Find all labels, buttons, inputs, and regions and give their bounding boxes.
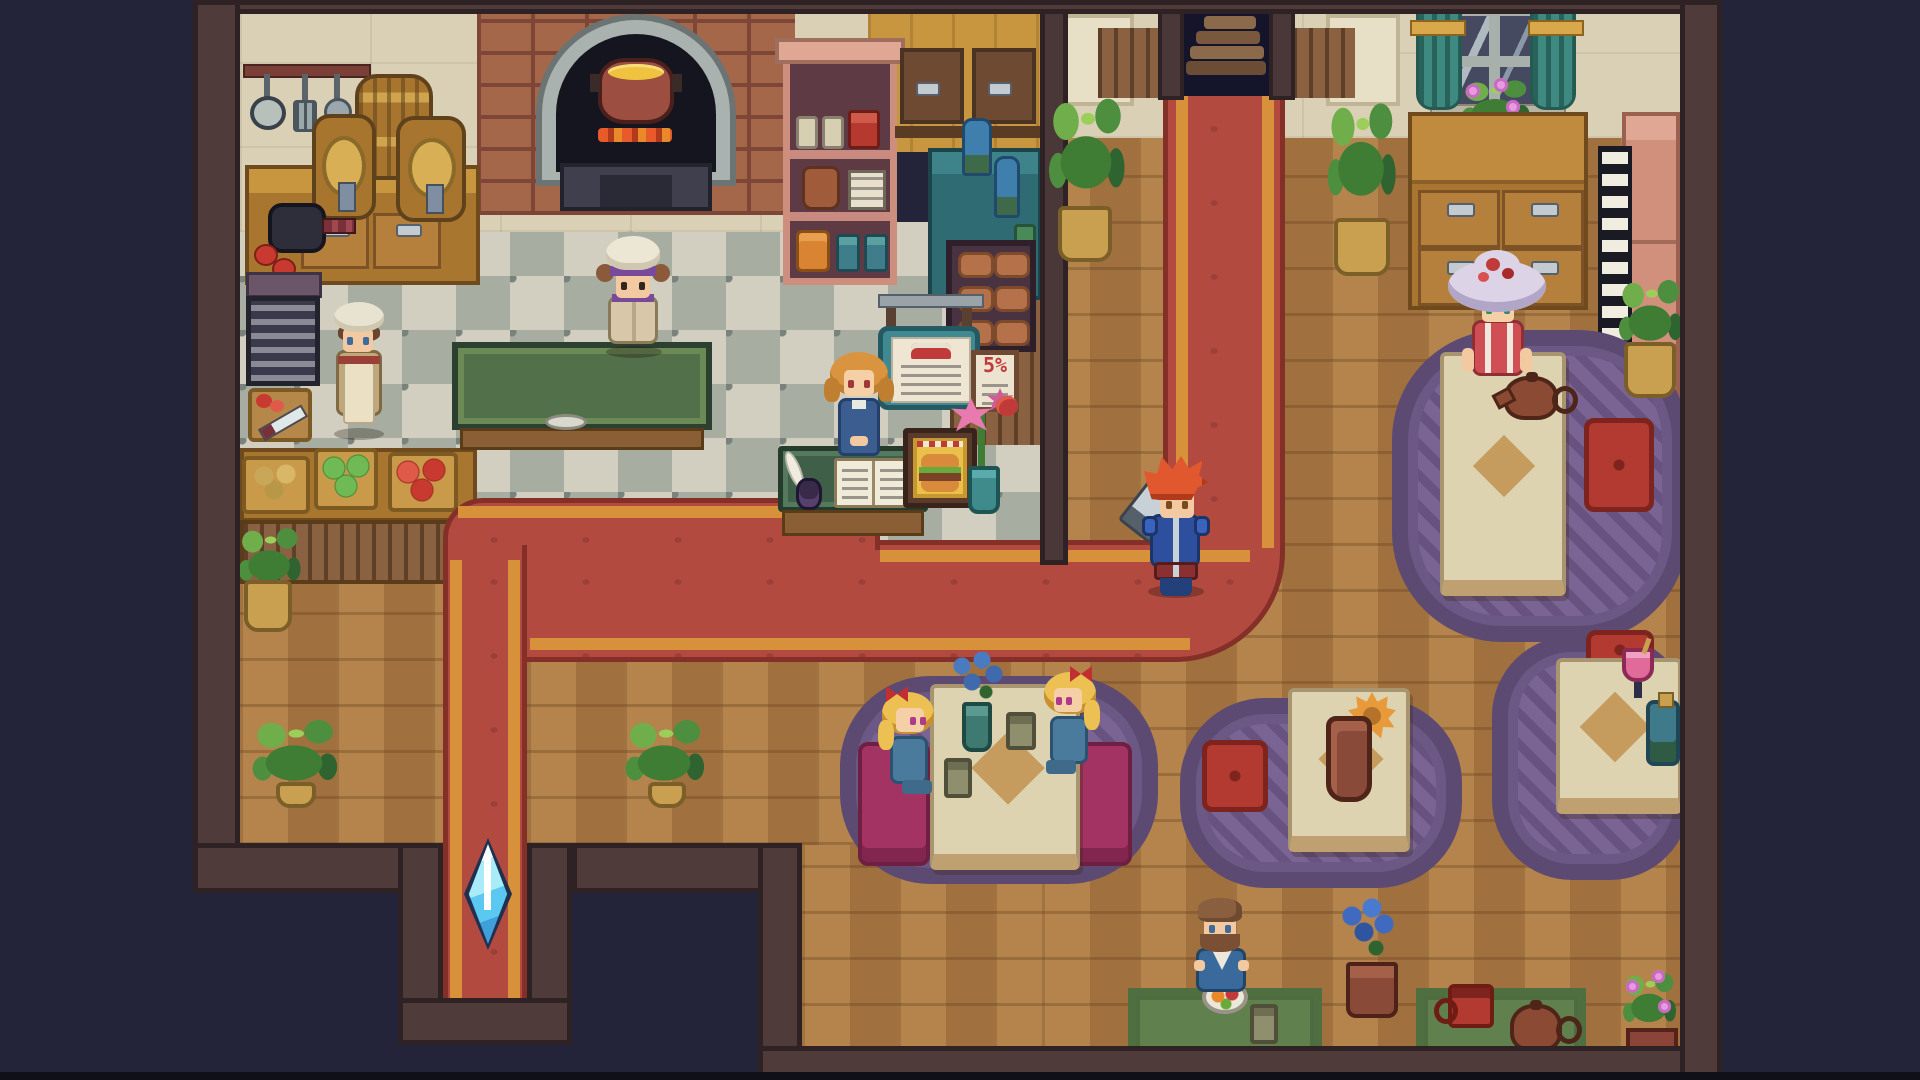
carpet-stripe <box>508 560 520 998</box>
wall-cabinet-door <box>972 48 1036 124</box>
drawer-handle-icon <box>1531 203 1559 217</box>
reception-desk-front <box>782 510 924 536</box>
mug-icon <box>944 758 972 798</box>
npc-head-chef[interactable] <box>594 236 674 358</box>
table-diamond-motif <box>1473 435 1535 497</box>
dresser-top <box>1412 116 1584 184</box>
dress <box>890 736 928 784</box>
pink-shelf-top <box>775 38 905 64</box>
menu-card <box>891 337 971 403</box>
dress <box>1050 716 1088 764</box>
book-gutter <box>872 461 875 505</box>
npc-hostess[interactable] <box>822 352 896 464</box>
plate-icon <box>545 414 587 430</box>
collar <box>852 400 866 409</box>
hair <box>1198 898 1242 922</box>
curtain-tie-icon <box>1528 20 1584 36</box>
teal-jar-icon <box>836 234 860 272</box>
hair-tail-icon <box>1084 700 1100 730</box>
cabinet-handle-icon <box>988 82 1012 96</box>
teapot-lid-icon <box>1530 1000 1542 1010</box>
cake-icon <box>911 343 951 359</box>
room-border-left <box>193 0 240 893</box>
flower-icon <box>1626 980 1639 993</box>
hand <box>1194 960 1205 971</box>
plant-pot <box>648 782 686 808</box>
burger-sign[interactable] <box>903 428 977 508</box>
blue-bottle-icon <box>962 118 992 176</box>
red-mug-icon <box>1448 984 1494 1028</box>
room-border-step-vertical <box>758 843 802 1052</box>
potato-basket <box>242 456 310 514</box>
room-border-top <box>193 0 1722 14</box>
flower-vase-brown <box>1326 716 1372 802</box>
plate-stack-icon <box>848 170 886 210</box>
bottle-cork-icon <box>1658 692 1674 708</box>
sign-crossbar-icon <box>878 294 984 308</box>
wine-glass-icon <box>1622 648 1654 682</box>
plant-pot <box>1058 206 1112 262</box>
doorway-plant-right <box>1316 82 1406 222</box>
bread-icon <box>994 286 1030 312</box>
prep-table-base <box>460 428 704 450</box>
barrel-tap-icon <box>426 184 444 214</box>
barrel-tapped <box>396 116 466 222</box>
carpet-stripe <box>1262 96 1274 548</box>
npc-sous-chef[interactable] <box>326 302 392 442</box>
mug-icon <box>1250 1004 1278 1044</box>
apron <box>343 362 375 424</box>
table-diamond-motif <box>1580 692 1651 763</box>
stairway-opening[interactable] <box>1184 0 1269 96</box>
barrel-tapped <box>312 114 376 220</box>
legs <box>1046 760 1076 774</box>
doorway-plant-left <box>1036 78 1136 214</box>
drawer-handle-icon <box>1447 203 1475 217</box>
glass-stem-icon <box>1634 682 1642 698</box>
seat-cushion[interactable] <box>1202 740 1268 812</box>
blue-flowers-icon <box>948 652 1006 706</box>
hair-lobe-icon <box>824 378 840 402</box>
face <box>896 708 924 732</box>
teal-bottle-icon <box>1646 700 1680 766</box>
hat-flower-icon <box>1478 272 1489 282</box>
tomato-basket <box>388 452 458 512</box>
chef-torso <box>608 296 658 344</box>
stair-step <box>1196 31 1260 44</box>
plant-pot <box>244 580 292 632</box>
pan-handle-icon <box>322 218 356 234</box>
save-crystal-shine <box>484 854 491 910</box>
jar-icon <box>796 116 818 149</box>
spatula-icon <box>302 74 308 102</box>
frying-pan-icon <box>268 203 326 253</box>
chef-hood-icon <box>334 302 384 332</box>
soup-pot[interactable] <box>598 58 674 124</box>
menu-scribble-text <box>901 365 961 395</box>
discount-poster-label: 5% <box>976 355 1014 375</box>
tomato-crate <box>246 272 322 298</box>
marquee-lights-icon <box>917 441 963 447</box>
oven-door <box>600 175 672 207</box>
npc-flower-hat-lady[interactable] <box>1448 256 1546 384</box>
stair-step <box>1204 16 1256 29</box>
arm <box>1462 348 1474 372</box>
npc-girl-right[interactable] <box>1036 670 1106 788</box>
flower-icon <box>1658 1000 1671 1013</box>
menu-book[interactable] <box>834 458 912 508</box>
cutting-board <box>248 388 312 442</box>
cabinet-handle-icon <box>916 82 940 96</box>
red-canister-icon <box>848 110 880 149</box>
oven-fire <box>598 128 672 142</box>
rack-grate <box>246 296 320 386</box>
burger-icon <box>921 481 959 492</box>
screen-bottom-edge <box>0 1072 1920 1080</box>
carpet-stripe <box>530 638 1190 650</box>
dresser-drawer <box>1502 190 1584 248</box>
pot-handle-right-icon <box>672 74 682 92</box>
carpet-stripe <box>450 560 462 998</box>
bread-icon <box>994 320 1030 346</box>
ladle-icon <box>334 74 340 100</box>
orange-jar-icon <box>796 230 830 272</box>
room-border-right <box>1680 0 1722 1080</box>
hands <box>850 436 868 446</box>
blue-flower-pot <box>1336 898 1398 964</box>
teapot-handle-icon <box>1556 1016 1582 1044</box>
hand <box>1238 960 1249 971</box>
rose-icon <box>996 396 1018 416</box>
bread-icon <box>958 252 994 278</box>
door-post <box>1158 0 1184 100</box>
legs <box>1160 578 1192 596</box>
legs <box>902 780 932 794</box>
teal-jar-icon <box>864 234 888 272</box>
shelf-board <box>790 212 890 221</box>
waistband <box>338 356 380 364</box>
shoulder-pad-icon <box>1194 516 1210 536</box>
stair-step <box>1190 46 1264 59</box>
plant-pot <box>276 782 316 808</box>
oven-base <box>560 163 712 211</box>
plant-pot <box>1624 342 1676 398</box>
drawer-handle-icon <box>396 224 422 237</box>
seat-cushion[interactable] <box>1584 418 1654 512</box>
book-text-left <box>842 467 868 499</box>
face <box>844 370 874 396</box>
ink-bottle-icon <box>796 478 822 510</box>
flower-icon <box>1494 78 1508 92</box>
flower-vase <box>962 702 992 752</box>
barrel-tap-icon <box>338 182 356 212</box>
curtain-tie-icon <box>1410 20 1466 36</box>
mug-icon <box>1006 712 1036 750</box>
pan-icon <box>250 96 286 130</box>
burger-sign-screen <box>913 438 967 498</box>
pot-handle-left-icon <box>590 74 600 92</box>
hair-tail-icon <box>878 720 894 750</box>
exit-threshold[interactable] <box>398 998 572 1045</box>
hat-flower-icon <box>1502 268 1514 279</box>
mug-handle-icon <box>1434 998 1458 1024</box>
tomato-slice-icon <box>270 400 284 412</box>
pan-icon <box>264 74 270 98</box>
bread-icon <box>994 252 1030 278</box>
flowering-bush <box>1614 962 1684 1036</box>
soup-surface <box>608 64 664 80</box>
jar-icon <box>822 116 844 149</box>
teapot-icon <box>1510 1004 1562 1052</box>
burger-icon <box>919 473 961 481</box>
dresser-drawer <box>1418 190 1500 248</box>
wall-cabinet-door <box>900 48 964 124</box>
npc-bearded-diner[interactable] <box>1184 898 1258 1006</box>
flower-icon <box>1652 970 1665 983</box>
hair-lobe-icon <box>878 378 894 402</box>
flower-vase <box>968 466 1000 514</box>
stair-step <box>1186 61 1266 75</box>
dress <box>1472 320 1524 376</box>
pitcher-icon <box>802 166 840 210</box>
player-hero[interactable] <box>1134 456 1218 600</box>
plant-pot <box>1334 218 1390 276</box>
face <box>1054 688 1082 712</box>
flower-pot-base <box>1346 962 1398 1018</box>
knife-icon <box>258 404 308 441</box>
spiky-red-hair <box>1144 456 1208 500</box>
arm <box>1520 348 1532 372</box>
game-viewport: 5% <box>0 0 1920 1080</box>
pink-shelf <box>783 45 897 285</box>
burger-icon <box>921 454 959 467</box>
cabbage-basket <box>314 448 378 510</box>
hat-flower-icon <box>1486 258 1500 271</box>
flower-icon <box>1466 84 1480 98</box>
beard-icon <box>1200 934 1240 952</box>
blue-bottle-icon <box>994 156 1020 218</box>
door-post <box>1269 0 1295 100</box>
shoulder-pad-icon <box>1142 516 1158 536</box>
shelf-board <box>790 150 890 159</box>
chef-hat-icon <box>606 236 660 270</box>
npc-girl-left[interactable] <box>872 690 942 808</box>
teapot-handle-icon <box>1552 386 1578 414</box>
